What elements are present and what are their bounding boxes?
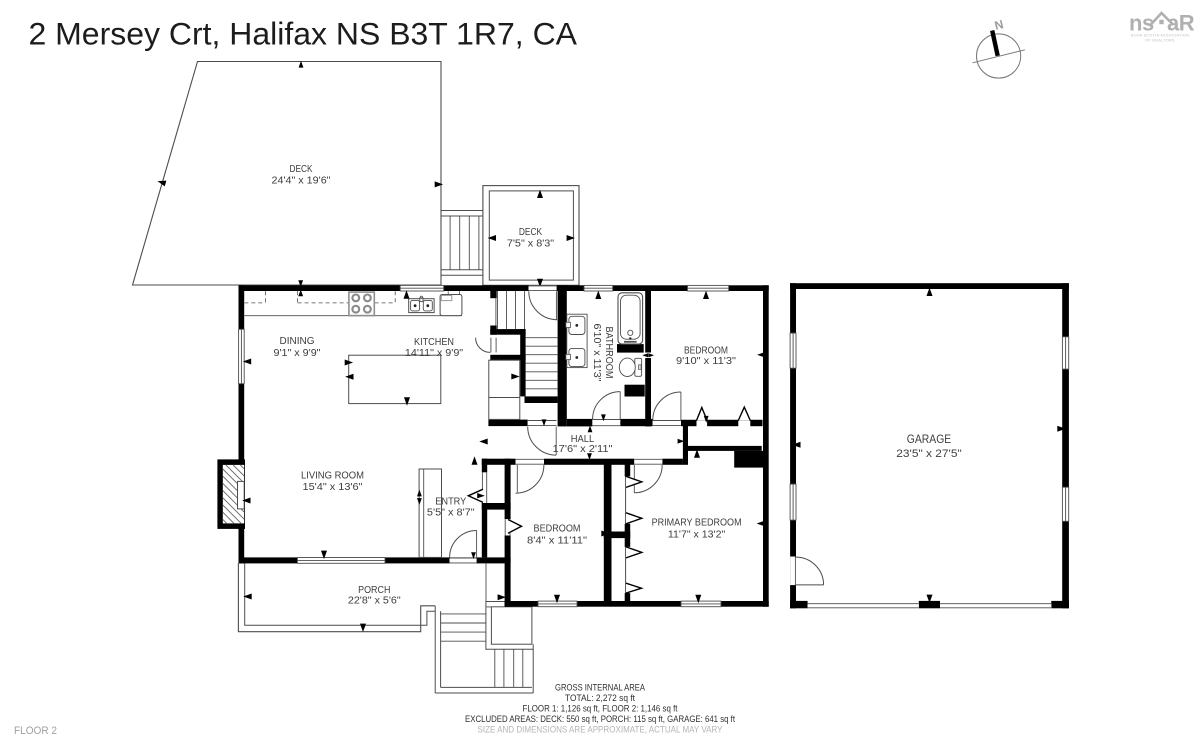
svg-text:PRIMARY BEDROOM: PRIMARY BEDROOM bbox=[652, 518, 742, 529]
svg-text:DECK: DECK bbox=[519, 227, 543, 238]
svg-text:14'11" x 9'9": 14'11" x 9'9" bbox=[405, 348, 464, 359]
svg-text:2 Mersey Crt, Halifax NS B3T 1: 2 Mersey Crt, Halifax NS B3T 1R7, CA bbox=[29, 16, 578, 52]
svg-text:GROSS INTERNAL AREA: GROSS INTERNAL AREA bbox=[555, 682, 645, 693]
svg-text:TOTAL: 2,272 sq ft: TOTAL: 2,272 sq ft bbox=[565, 693, 635, 704]
svg-text:5'5" x 8'7": 5'5" x 8'7" bbox=[427, 508, 475, 519]
svg-text:KITCHEN: KITCHEN bbox=[414, 337, 454, 348]
svg-text:9'10" x 11'3": 9'10" x 11'3" bbox=[676, 356, 736, 367]
svg-text:8'4" x 11'11": 8'4" x 11'11" bbox=[527, 535, 588, 546]
svg-text:DECK: DECK bbox=[290, 164, 313, 175]
svg-text:ns: ns bbox=[1129, 11, 1154, 36]
svg-text:9'1" x 9'9": 9'1" x 9'9" bbox=[274, 348, 321, 359]
svg-text:NOVA SCOTIA ASSOCIATION: NOVA SCOTIA ASSOCIATION bbox=[1131, 34, 1190, 38]
svg-text:ENTRY: ENTRY bbox=[435, 496, 466, 507]
svg-text:22'8" x 5'6": 22'8" x 5'6" bbox=[348, 595, 401, 606]
svg-text:6'10" x 11'3": 6'10" x 11'3" bbox=[591, 324, 602, 382]
svg-text:FLOOR 2: FLOOR 2 bbox=[14, 725, 57, 737]
svg-text:DINING: DINING bbox=[280, 336, 315, 347]
svg-text:OF REALTORS: OF REALTORS bbox=[1145, 39, 1175, 43]
svg-text:24'4" x 19'6": 24'4" x 19'6" bbox=[272, 175, 331, 186]
svg-text:23'5" x 27'5": 23'5" x 27'5" bbox=[896, 448, 962, 460]
svg-text:BEDROOM: BEDROOM bbox=[684, 346, 728, 357]
svg-text:11'7" x 13'2": 11'7" x 13'2" bbox=[668, 529, 726, 540]
svg-text:FLOOR 1: 1,126 sq ft, FLOOR 2:: FLOOR 1: 1,126 sq ft, FLOOR 2: 1,146 sq … bbox=[523, 703, 678, 714]
svg-text:17'6" x 2'11": 17'6" x 2'11" bbox=[553, 444, 613, 455]
svg-text:BEDROOM: BEDROOM bbox=[534, 523, 581, 534]
svg-text:BATHROOM: BATHROOM bbox=[603, 327, 614, 379]
svg-text:15'4" x 13'6": 15'4" x 13'6" bbox=[303, 482, 363, 493]
svg-text:EXCLUDED AREAS: DECK: 550 sq f: EXCLUDED AREAS: DECK: 550 sq ft, PORCH: … bbox=[465, 714, 735, 725]
svg-text:7'5" x 8'3": 7'5" x 8'3" bbox=[507, 238, 555, 249]
svg-text:LIVING ROOM: LIVING ROOM bbox=[301, 471, 364, 482]
svg-text:GARAGE: GARAGE bbox=[907, 432, 951, 446]
svg-text:SIZE AND DIMENSIONS ARE APPROX: SIZE AND DIMENSIONS ARE APPROXIMATE, ACT… bbox=[478, 724, 723, 735]
